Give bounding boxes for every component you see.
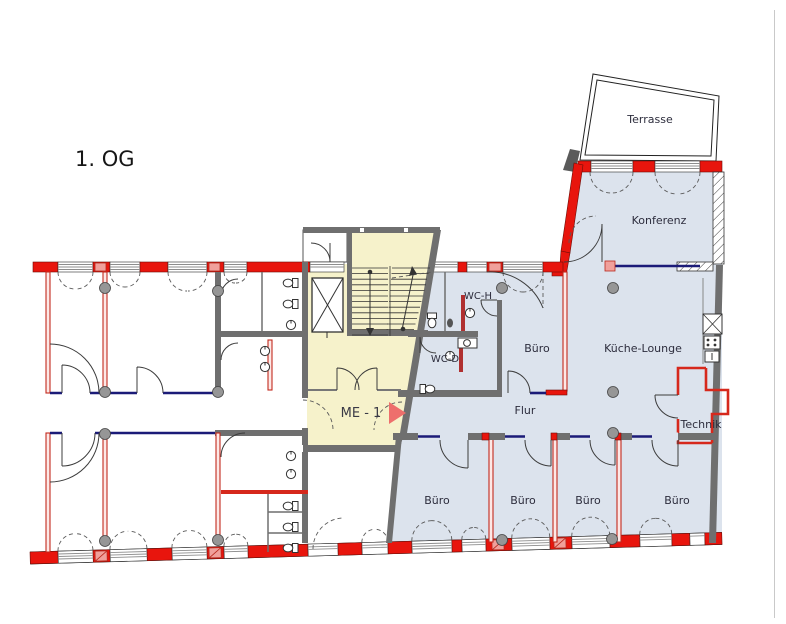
label-me1: ME - 1 <box>341 406 382 421</box>
label-kueche-lounge: Küche-Lounge <box>604 342 682 355</box>
room-white-lower <box>305 452 398 543</box>
floor-title: 1. OG <box>75 147 135 171</box>
shaft <box>303 230 347 262</box>
stove-icon <box>704 336 720 349</box>
label-wc-h: WC-H <box>464 291 492 302</box>
label-buero-top: Büro <box>524 342 550 355</box>
label-flur: Flur <box>515 404 536 417</box>
label-konferenz: Konferenz <box>632 214 687 227</box>
label-buero-4: Büro <box>664 494 690 507</box>
label-buero-1: Büro <box>424 494 450 507</box>
label-buero-3: Büro <box>575 494 601 507</box>
label-wc-d: WC-D <box>431 354 459 365</box>
floorplan-drawing: 1. OG Terrasse Konferenz Küche-Lounge Bü… <box>0 0 786 624</box>
label-terrasse: Terrasse <box>626 113 673 126</box>
rooms-left-white <box>35 272 303 543</box>
label-technik: Technik <box>679 418 722 431</box>
label-buero-2: Büro <box>510 494 536 507</box>
floorplan-page: 1. OG Terrasse Konferenz Küche-Lounge Bü… <box>0 0 786 624</box>
staircore-upper <box>347 232 437 264</box>
